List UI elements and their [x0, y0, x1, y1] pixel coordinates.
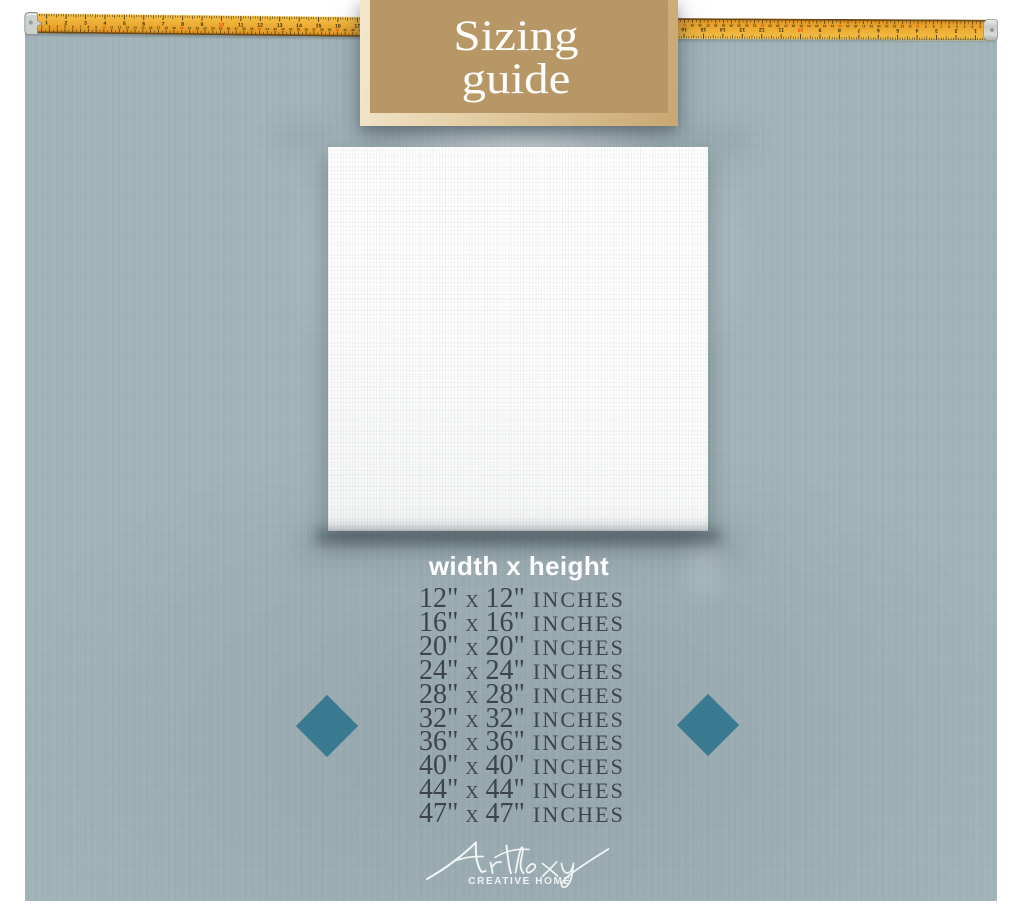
svg-text:29: 29 — [250, 27, 254, 31]
svg-text:31: 31 — [753, 23, 757, 27]
svg-text:27: 27 — [234, 27, 238, 31]
svg-text:37: 37 — [706, 23, 710, 27]
svg-text:7: 7 — [857, 26, 860, 32]
svg-text:10: 10 — [916, 24, 920, 28]
svg-text:6: 6 — [948, 24, 950, 28]
svg-text:12: 12 — [900, 24, 904, 28]
svg-text:20: 20 — [838, 24, 842, 28]
svg-text:17: 17 — [157, 26, 161, 30]
svg-text:4: 4 — [964, 24, 966, 28]
svg-text:14: 14 — [885, 24, 889, 28]
svg-text:26: 26 — [792, 23, 796, 27]
svg-text:17: 17 — [862, 24, 866, 28]
svg-text:23: 23 — [203, 26, 207, 30]
svg-text:12: 12 — [118, 25, 122, 29]
svg-text:10: 10 — [102, 25, 106, 29]
svg-text:16: 16 — [149, 26, 153, 30]
svg-text:14: 14 — [133, 26, 137, 30]
svg-text:16: 16 — [869, 24, 873, 28]
svg-text:34: 34 — [289, 27, 293, 31]
svg-text:24: 24 — [211, 26, 215, 30]
svg-text:15: 15 — [141, 26, 145, 30]
svg-text:5: 5 — [64, 25, 66, 29]
svg-text:11: 11 — [908, 24, 912, 28]
svg-text:5: 5 — [896, 26, 899, 32]
svg-text:9: 9 — [925, 24, 927, 28]
svg-text:21: 21 — [830, 23, 834, 27]
svg-text:30: 30 — [760, 23, 764, 27]
svg-text:29: 29 — [768, 23, 772, 27]
svg-text:23: 23 — [815, 23, 819, 27]
svg-text:34: 34 — [729, 23, 733, 27]
svg-text:20: 20 — [180, 26, 184, 30]
svg-text:36: 36 — [304, 27, 308, 31]
svg-text:35: 35 — [297, 27, 301, 31]
svg-text:30: 30 — [258, 27, 262, 31]
svg-text:32: 32 — [273, 27, 277, 31]
svg-text:24: 24 — [807, 23, 811, 27]
svg-text:21: 21 — [188, 26, 192, 30]
svg-text:7: 7 — [940, 24, 942, 28]
svg-text:19: 19 — [172, 26, 176, 30]
svg-text:36: 36 — [714, 23, 718, 27]
svg-text:38: 38 — [320, 28, 324, 32]
svg-text:27: 27 — [784, 23, 788, 27]
svg-text:3: 3 — [971, 24, 973, 28]
svg-text:35: 35 — [722, 23, 726, 27]
svg-text:9: 9 — [818, 26, 821, 32]
svg-text:26: 26 — [227, 27, 231, 31]
svg-text:7: 7 — [80, 25, 82, 29]
svg-text:2: 2 — [979, 24, 981, 28]
svg-text:18: 18 — [854, 24, 858, 28]
svg-text:3: 3 — [935, 27, 938, 33]
svg-text:13: 13 — [893, 24, 897, 28]
svg-text:22: 22 — [196, 26, 200, 30]
svg-text:39: 39 — [328, 28, 332, 32]
svg-text:38: 38 — [698, 23, 702, 27]
svg-text:8: 8 — [87, 25, 89, 29]
svg-text:25: 25 — [799, 23, 803, 27]
svg-text:6: 6 — [72, 25, 74, 29]
svg-text:4: 4 — [56, 25, 58, 29]
svg-text:5: 5 — [956, 24, 958, 28]
svg-text:19: 19 — [846, 24, 850, 28]
svg-text:37: 37 — [312, 28, 316, 32]
svg-text:28: 28 — [776, 23, 780, 27]
svg-text:33: 33 — [281, 27, 285, 31]
svg-text:32: 32 — [745, 23, 749, 27]
svg-text:8: 8 — [932, 24, 934, 28]
svg-text:3: 3 — [49, 25, 51, 29]
svg-text:18: 18 — [164, 26, 168, 30]
svg-text:1: 1 — [974, 27, 977, 33]
svg-text:33: 33 — [737, 23, 741, 27]
svg-text:13: 13 — [125, 25, 129, 29]
svg-text:31: 31 — [266, 27, 270, 31]
svg-text:9: 9 — [95, 25, 97, 29]
svg-text:22: 22 — [823, 23, 827, 27]
svg-text:25: 25 — [219, 26, 223, 30]
svg-text:11: 11 — [110, 25, 114, 29]
svg-text:15: 15 — [877, 24, 881, 28]
svg-text:28: 28 — [242, 27, 246, 31]
